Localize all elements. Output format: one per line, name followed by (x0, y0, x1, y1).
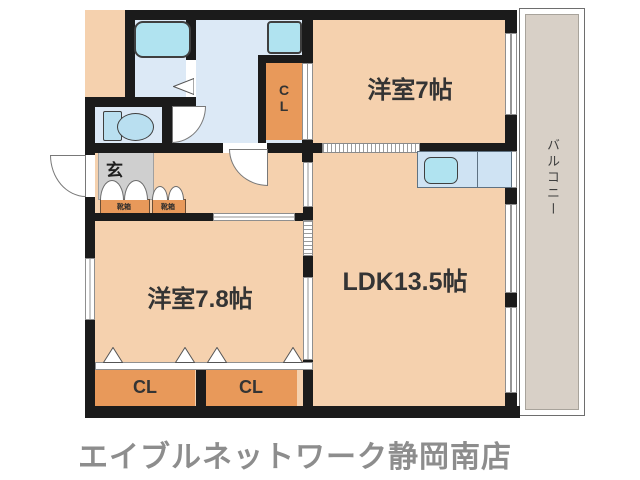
wall-segment (95, 143, 223, 153)
wash-basin-icon (267, 21, 302, 54)
folding-door-icon (207, 347, 227, 363)
room-label-bedroom1: 洋室7帖 (330, 70, 490, 105)
entrance-door-arc (50, 155, 86, 197)
floorplan-canvas: バルコニー (0, 0, 640, 480)
shoebox-label: 靴箱 (100, 202, 148, 212)
wall-segment (85, 406, 520, 418)
window (85, 258, 95, 320)
wall-segment (505, 393, 517, 406)
closet-bottom-right-label: CL (205, 377, 297, 398)
folding-door-icon (103, 347, 123, 363)
sliding-door (303, 220, 313, 256)
window (505, 33, 517, 115)
wall-segment (125, 10, 135, 107)
window (505, 204, 517, 293)
sliding-door (303, 162, 313, 207)
store-name: エイブルネットワーク静岡南店 (60, 432, 530, 476)
genkan-label: 玄 (106, 156, 123, 181)
room-label-bedroom2: 洋室7.8帖 (120, 279, 280, 314)
closet-sliding-door (302, 63, 313, 140)
folding-door-icon (283, 347, 303, 363)
wall-segment (125, 10, 517, 20)
closet-upper-label: CL (276, 82, 292, 114)
kitchen-counter-divider (477, 152, 478, 187)
sliding-door (213, 213, 295, 221)
closet-track-line (95, 362, 313, 370)
wall-segment (303, 256, 313, 277)
wall-segment (258, 55, 308, 63)
wall-segment (85, 320, 95, 406)
doorway-opening (85, 155, 95, 197)
sliding-door (322, 143, 420, 153)
wall-segment (313, 143, 322, 153)
wall-segment (505, 188, 517, 204)
closet-bottom-left-label: CL (95, 377, 195, 398)
toilet-icon (117, 113, 154, 141)
kitchen-sink-icon (424, 157, 458, 184)
wall-segment (302, 140, 313, 162)
wall-segment (302, 10, 313, 63)
shoebox-label: 靴箱 (152, 202, 184, 212)
room-label-ldk: LDK13.5帖 (320, 262, 490, 298)
wall-segment (505, 293, 517, 307)
wall-segment (85, 197, 95, 258)
folding-door-icon (173, 78, 194, 95)
wall-segment (258, 55, 266, 143)
sliding-door (303, 277, 313, 360)
wall-segment (95, 213, 213, 221)
wall-segment (505, 10, 517, 33)
window (505, 307, 517, 393)
balcony-label: バルコニー (543, 138, 562, 218)
folding-door-icon (175, 347, 195, 363)
wall-segment (85, 107, 95, 155)
bathtub-icon (134, 21, 191, 58)
